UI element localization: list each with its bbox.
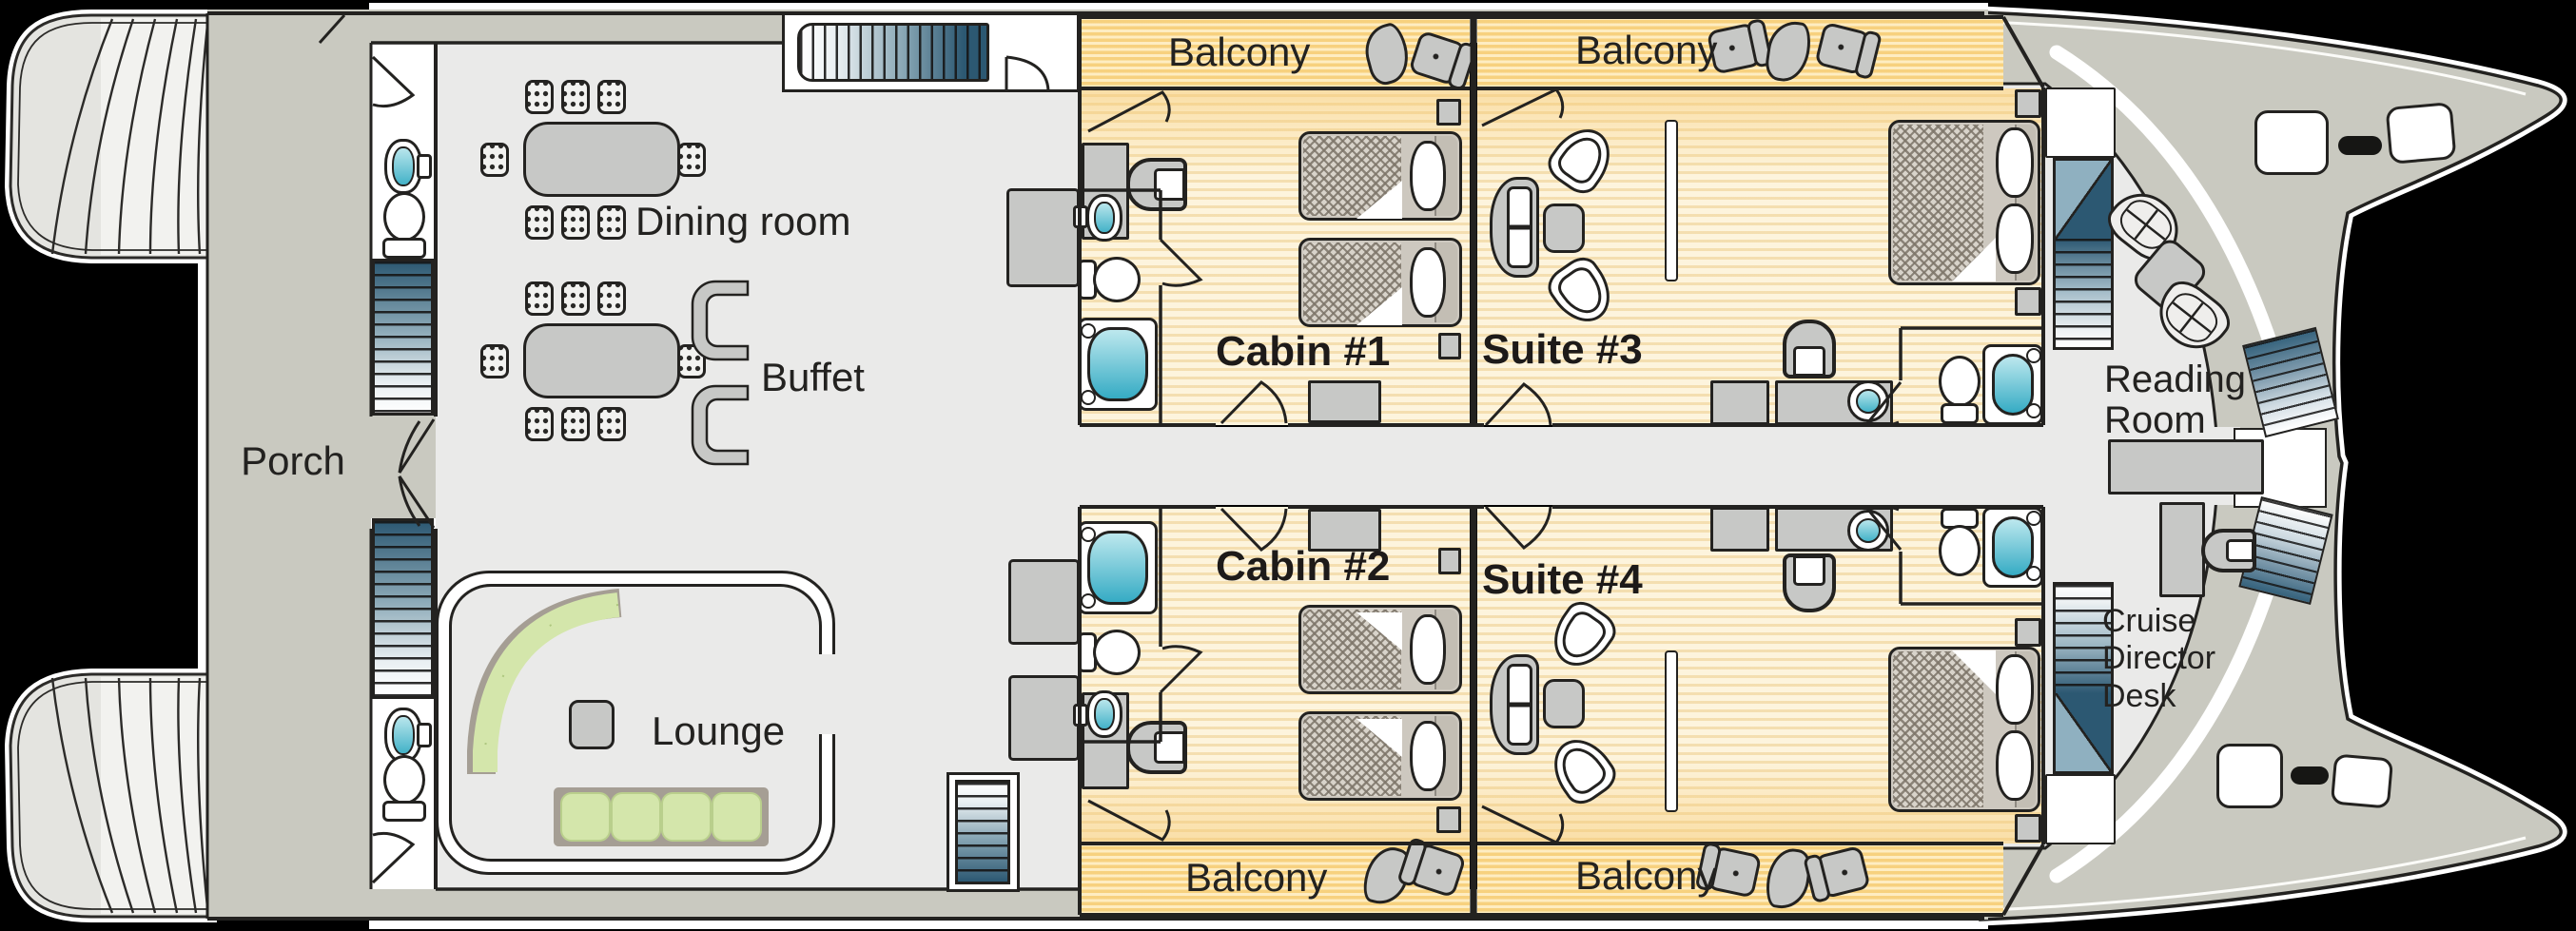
bathroom-wall <box>1078 190 1161 425</box>
door-bathroom <box>1161 240 1200 285</box>
label-lounge: Lounge <box>652 711 785 751</box>
label-dining-room: Dining room <box>635 202 850 242</box>
label-balcony-cabin-2: Balcony <box>1185 858 1327 898</box>
label-cruise-director-desk: Cruise Director Desk <box>2102 603 2245 715</box>
door-porch-right-leaf <box>400 476 434 528</box>
door-symbols <box>373 57 1901 883</box>
door-porch-left-leaf <box>400 419 434 473</box>
label-balcony-suite-3: Balcony <box>1575 30 1717 70</box>
door-bathroom <box>1868 382 1901 425</box>
door <box>373 833 413 883</box>
bathroom-wall <box>1078 507 1161 742</box>
door-balcony <box>1482 89 1563 126</box>
door-balcony <box>1088 801 1169 840</box>
label-balcony-suite-4: Balcony <box>1575 856 1717 896</box>
label-balcony-cabin-1: Balcony <box>1168 32 1310 72</box>
wall <box>1080 17 2003 915</box>
door-suite-3 <box>1486 384 1551 425</box>
label-suite-3: Suite #3 <box>1482 329 1643 371</box>
door-cabin-1 <box>1221 382 1286 423</box>
door-balcony <box>1088 92 1169 131</box>
label-buffet: Buffet <box>761 358 865 398</box>
label-cabin-1: Cabin #1 <box>1216 331 1390 373</box>
deck-plan: Porch Dining room Buffet Lounge Cabin #1… <box>0 0 2576 931</box>
label-porch: Porch <box>217 441 369 481</box>
door-balcony <box>1482 806 1563 843</box>
label-suite-4: Suite #4 <box>1482 559 1643 601</box>
walls-and-doors <box>0 0 2576 931</box>
door-suite-4 <box>1486 507 1551 548</box>
door <box>1006 57 1048 90</box>
label-reading-room: Reading Room <box>2104 359 2280 441</box>
bathroom-wall <box>1901 552 2043 604</box>
bathroom-wall <box>1901 328 2043 380</box>
wall <box>320 15 344 43</box>
door <box>373 57 413 107</box>
door-bathroom <box>1161 647 1200 692</box>
door-bathroom <box>1868 507 1901 550</box>
label-cabin-2: Cabin #2 <box>1216 546 1390 588</box>
